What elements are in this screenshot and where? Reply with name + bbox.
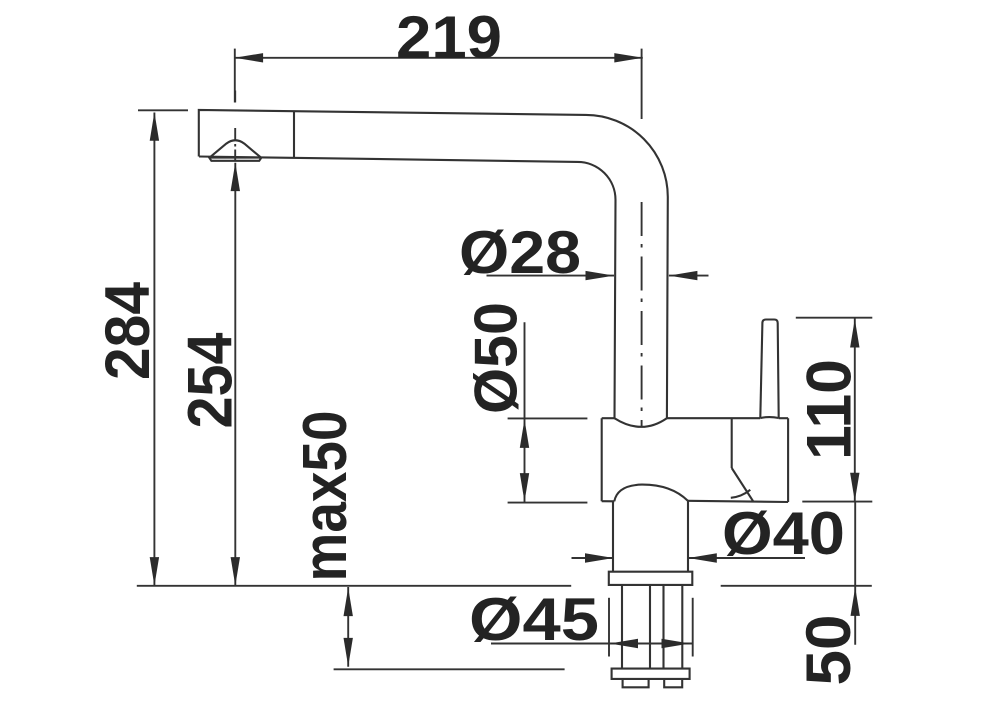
svg-text:254: 254 — [176, 333, 246, 429]
svg-text:max50: max50 — [291, 411, 360, 582]
svg-text:284: 284 — [93, 282, 163, 380]
svg-text:219: 219 — [396, 4, 502, 71]
svg-text:Ø40: Ø40 — [722, 500, 845, 567]
svg-text:Ø45: Ø45 — [469, 586, 599, 653]
svg-text:50: 50 — [794, 615, 864, 686]
svg-text:Ø28: Ø28 — [459, 219, 581, 286]
svg-text:Ø50: Ø50 — [463, 302, 530, 414]
svg-text:110: 110 — [795, 359, 865, 460]
